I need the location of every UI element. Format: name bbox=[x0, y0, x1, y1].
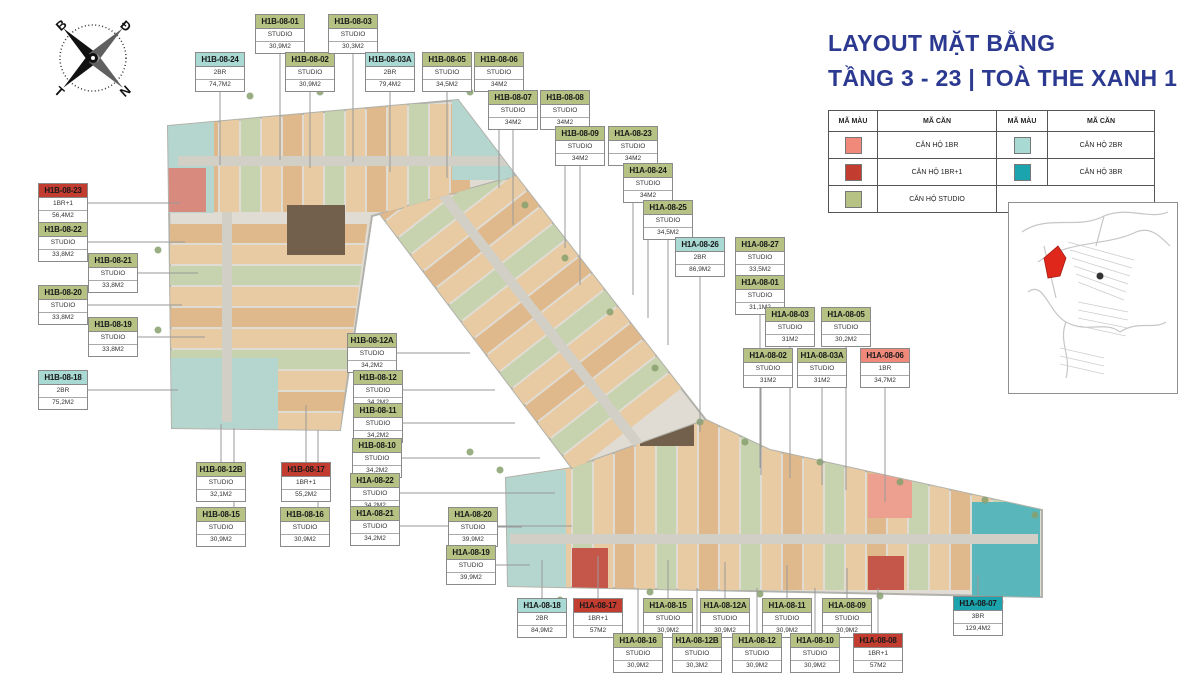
unit-type: 1BR+1 bbox=[574, 613, 622, 626]
unit-id: H1A-08-09 bbox=[823, 599, 871, 613]
unit-id: H1B-08-02 bbox=[286, 53, 334, 67]
unit-id: H1B-08-23 bbox=[39, 184, 87, 198]
unit-type: STUDIO bbox=[614, 648, 662, 661]
unit-id: H1B-08-12B bbox=[197, 463, 245, 477]
unit-area: 31M2 bbox=[744, 376, 792, 388]
unit-area: 39,9M2 bbox=[447, 573, 495, 585]
unit-label-H1A-08-26: H1A-08-262BR86,9M2 bbox=[675, 237, 725, 277]
unit-id: H1A-08-22 bbox=[351, 474, 399, 488]
compass-d: Đ bbox=[117, 17, 134, 34]
unit-id: H1A-08-26 bbox=[676, 238, 724, 252]
unit-type: STUDIO bbox=[423, 67, 471, 80]
compass-t: T bbox=[51, 83, 67, 100]
unit-label-H1B-08-07: H1B-08-07STUDIO34M2 bbox=[488, 90, 538, 130]
unit-id: H1A-08-12A bbox=[701, 599, 749, 613]
legend-table: MÃ MÀUMÃ CĂNMÃ MÀUMÃ CĂNCĂN HỘ 1BRCĂN HỘ… bbox=[828, 110, 1155, 213]
unit-area: 34M2 bbox=[489, 118, 537, 130]
legend-swatch-1BR+1 bbox=[845, 164, 862, 181]
unit-id: H1A-08-06 bbox=[861, 349, 909, 363]
legend-color-cell bbox=[829, 159, 877, 185]
unit-type: STUDIO bbox=[733, 648, 781, 661]
unit-type: STUDIO bbox=[624, 178, 672, 191]
unit-id: H1B-08-15 bbox=[197, 508, 245, 522]
unit-label-H1B-08-03: H1B-08-03STUDIO30,3M2 bbox=[328, 14, 378, 54]
unit-type: 2BR bbox=[518, 613, 566, 626]
unit-area: 30,9M2 bbox=[281, 535, 329, 547]
unit-type: STUDIO bbox=[449, 522, 497, 535]
unit-id: H1B-08-16 bbox=[281, 508, 329, 522]
unit-id: H1B-08-12A bbox=[348, 334, 396, 348]
unit-label-H1A-08-03: H1A-08-03STUDIO31M2 bbox=[765, 307, 815, 347]
unit-id: H1B-08-17 bbox=[282, 463, 330, 477]
unit-area: 32,1M2 bbox=[197, 490, 245, 502]
legend-color-cell bbox=[997, 159, 1047, 185]
unit-area: 30,9M2 bbox=[197, 535, 245, 547]
unit-label-H1B-08-21: H1B-08-21STUDIO33,8M2 bbox=[88, 253, 138, 293]
unit-area: 33,8M2 bbox=[89, 345, 137, 357]
unit-id: H1B-08-07 bbox=[489, 91, 537, 105]
legend-header-unit: MÃ CĂN bbox=[878, 111, 996, 131]
unit-label-H1B-08-24: H1B-08-242BR74,7M2 bbox=[195, 52, 245, 92]
unit-id: H1A-08-01 bbox=[736, 276, 784, 290]
unit-area: 79,4M2 bbox=[366, 80, 414, 92]
unit-type: STUDIO bbox=[763, 613, 811, 626]
unit-id: H1A-08-07 bbox=[954, 597, 1002, 611]
unit-id: H1B-08-20 bbox=[39, 286, 87, 300]
unit-area: 55,2M2 bbox=[282, 490, 330, 502]
unit-type: 2BR bbox=[366, 67, 414, 80]
unit-area: 57M2 bbox=[854, 661, 902, 673]
unit-type: STUDIO bbox=[354, 418, 402, 431]
unit-label-H1A-08-21: H1A-08-21STUDIO34,2M2 bbox=[350, 506, 400, 546]
unit-label-H1A-08-12: H1A-08-12STUDIO30,9M2 bbox=[732, 633, 782, 673]
title-line-1: LAYOUT MẶT BẰNG bbox=[828, 26, 1177, 61]
unit-id: H1A-08-05 bbox=[822, 308, 870, 322]
unit-type: STUDIO bbox=[197, 522, 245, 535]
unit-label-H1A-08-17: H1A-08-171BR+157M2 bbox=[573, 598, 623, 638]
unit-type: STUDIO bbox=[351, 521, 399, 534]
unit-type: STUDIO bbox=[791, 648, 839, 661]
unit-id: H1A-08-23 bbox=[609, 127, 657, 141]
unit-type: STUDIO bbox=[281, 522, 329, 535]
unit-label-H1A-08-19: H1A-08-19STUDIO39,9M2 bbox=[446, 545, 496, 585]
title-line-2: TẦNG 3 - 23 | TOÀ THE XANH 1 bbox=[828, 61, 1177, 96]
unit-type: 2BR bbox=[39, 385, 87, 398]
unit-label-H1B-08-16: H1B-08-16STUDIO30,9M2 bbox=[280, 507, 330, 547]
unit-label-H1A-08-18: H1A-08-182BR84,9M2 bbox=[517, 598, 567, 638]
unit-id: H1B-08-03 bbox=[329, 15, 377, 29]
unit-label-H1B-08-23: H1B-08-231BR+156,4M2 bbox=[38, 183, 88, 223]
unit-area: 56,4M2 bbox=[39, 211, 87, 223]
unit-type: 1BR+1 bbox=[282, 477, 330, 490]
page-title: LAYOUT MẶT BẰNG TẦNG 3 - 23 | TOÀ THE XA… bbox=[828, 26, 1177, 95]
unit-area: 34M2 bbox=[556, 154, 604, 166]
unit-type: STUDIO bbox=[823, 613, 871, 626]
compass-icon: B Đ T N bbox=[45, 8, 141, 104]
unit-label-H1A-08-16: H1A-08-16STUDIO30,9M2 bbox=[613, 633, 663, 673]
unit-id: H1B-08-19 bbox=[89, 318, 137, 332]
unit-label-H1B-08-12B: H1B-08-12BSTUDIO32,1M2 bbox=[196, 462, 246, 502]
legend-color-cell bbox=[997, 132, 1047, 158]
unit-id: H1A-08-11 bbox=[763, 599, 811, 613]
unit-type: STUDIO bbox=[644, 613, 692, 626]
unit-id: H1A-08-24 bbox=[624, 164, 672, 178]
unit-id: H1A-08-15 bbox=[644, 599, 692, 613]
unit-label-H1A-08-24: H1A-08-24STUDIO34M2 bbox=[623, 163, 673, 203]
unit-id: H1B-08-11 bbox=[354, 404, 402, 418]
unit-id: H1A-08-18 bbox=[518, 599, 566, 613]
unit-type: STUDIO bbox=[701, 613, 749, 626]
unit-label-H1B-08-06: H1B-08-06STUDIO34M2 bbox=[474, 52, 524, 92]
unit-type: 1BR+1 bbox=[39, 198, 87, 211]
unit-area: 33,8M2 bbox=[39, 313, 87, 325]
unit-id: H1B-08-21 bbox=[89, 254, 137, 268]
unit-id: H1B-08-09 bbox=[556, 127, 604, 141]
legend-swatch-STUDIO bbox=[845, 191, 862, 208]
unit-area: 75,2M2 bbox=[39, 398, 87, 410]
unit-type: STUDIO bbox=[475, 67, 523, 80]
unit-area: 33,8M2 bbox=[39, 250, 87, 262]
unit-id: H1B-08-03A bbox=[366, 53, 414, 67]
unit-label-H1B-08-10: H1B-08-10STUDIO34,2M2 bbox=[352, 438, 402, 478]
unit-id: H1A-08-17 bbox=[574, 599, 622, 613]
unit-id: H1A-08-12B bbox=[673, 634, 721, 648]
unit-type: STUDIO bbox=[39, 237, 87, 250]
unit-area: 129,4M2 bbox=[954, 624, 1002, 636]
unit-type: STUDIO bbox=[489, 105, 537, 118]
unit-id: H1A-08-03A bbox=[798, 349, 846, 363]
unit-label-H1B-08-12A: H1B-08-12ASTUDIO34,2M2 bbox=[347, 333, 397, 373]
unit-type: STUDIO bbox=[286, 67, 334, 80]
unit-label-H1A-08-12A: H1A-08-12ASTUDIO30,9M2 bbox=[700, 598, 750, 638]
unit-label-H1B-08-20: H1B-08-20STUDIO33,8M2 bbox=[38, 285, 88, 325]
unit-label-H1B-08-02: H1B-08-02STUDIO30,9M2 bbox=[285, 52, 335, 92]
unit-area: 30,3M2 bbox=[673, 661, 721, 673]
unit-id: H1B-08-12 bbox=[354, 371, 402, 385]
unit-id: H1B-08-24 bbox=[196, 53, 244, 67]
unit-id: H1B-08-05 bbox=[423, 53, 471, 67]
unit-id: H1B-08-08 bbox=[541, 91, 589, 105]
unit-id: H1A-08-08 bbox=[854, 634, 902, 648]
unit-area: 30,9M2 bbox=[733, 661, 781, 673]
unit-label-H1B-08-19: H1B-08-19STUDIO33,8M2 bbox=[88, 317, 138, 357]
unit-label-H1A-08-15: H1A-08-15STUDIO30,9M2 bbox=[643, 598, 693, 638]
unit-type: STUDIO bbox=[556, 141, 604, 154]
unit-label-H1B-08-15: H1B-08-15STUDIO30,9M2 bbox=[196, 507, 246, 547]
unit-label-H1A-08-09: H1A-08-09STUDIO30,9M2 bbox=[822, 598, 872, 638]
unit-area: 31M2 bbox=[766, 335, 814, 347]
legend-swatch-3BR bbox=[1014, 164, 1031, 181]
unit-id: H1A-08-10 bbox=[791, 634, 839, 648]
unit-label-H1A-08-05: H1A-08-05STUDIO30,2M2 bbox=[821, 307, 871, 347]
unit-area: 86,9M2 bbox=[676, 265, 724, 277]
unit-area: 34,5M2 bbox=[423, 80, 471, 92]
unit-label-H1B-08-11: H1B-08-11STUDIO34,2M2 bbox=[353, 403, 403, 443]
unit-type: STUDIO bbox=[736, 252, 784, 265]
unit-label-H1A-08-08: H1A-08-081BR+157M2 bbox=[853, 633, 903, 673]
floorplan-page: B Đ T N LAYOUT MẶT BẰNG TẦNG 3 - 23 | TO… bbox=[0, 0, 1200, 675]
unit-id: H1A-08-20 bbox=[449, 508, 497, 522]
unit-id: H1B-08-22 bbox=[39, 223, 87, 237]
legend-label: CĂN HỘ 1BR bbox=[878, 132, 996, 158]
unit-label-H1B-08-01: H1B-08-01STUDIO30,9M2 bbox=[255, 14, 305, 54]
unit-area: 30,2M2 bbox=[822, 335, 870, 347]
unit-area: 33,8M2 bbox=[89, 281, 137, 293]
unit-type: STUDIO bbox=[644, 215, 692, 228]
legend-label: CĂN HỘ 1BR+1 bbox=[878, 159, 996, 185]
unit-label-H1A-08-27: H1A-08-27STUDIO33,5M2 bbox=[735, 237, 785, 277]
unit-label-H1A-08-23: H1A-08-23STUDIO34M2 bbox=[608, 126, 658, 166]
legend-swatch-2BR bbox=[1014, 137, 1031, 154]
unit-label-H1B-08-03A: H1B-08-03A2BR79,4M2 bbox=[365, 52, 415, 92]
unit-type: STUDIO bbox=[89, 268, 137, 281]
unit-label-H1B-08-17: H1B-08-171BR+155,2M2 bbox=[281, 462, 331, 502]
legend-swatch-1BR bbox=[845, 137, 862, 154]
unit-label-H1A-08-25: H1A-08-25STUDIO34,5M2 bbox=[643, 200, 693, 240]
unit-type: STUDIO bbox=[197, 477, 245, 490]
unit-id: H1A-08-16 bbox=[614, 634, 662, 648]
unit-id: H1B-08-10 bbox=[353, 439, 401, 453]
unit-label-H1A-08-12B: H1A-08-12BSTUDIO30,3M2 bbox=[672, 633, 722, 673]
unit-type: STUDIO bbox=[822, 322, 870, 335]
unit-type: 3BR bbox=[954, 611, 1002, 624]
unit-type: STUDIO bbox=[354, 385, 402, 398]
unit-label-H1B-08-09: H1B-08-09STUDIO34M2 bbox=[555, 126, 605, 166]
legend-color-cell bbox=[829, 186, 877, 212]
unit-type: STUDIO bbox=[89, 332, 137, 345]
unit-type: STUDIO bbox=[353, 453, 401, 466]
unit-area: 31M2 bbox=[798, 376, 846, 388]
unit-label-H1A-08-10: H1A-08-10STUDIO30,9M2 bbox=[790, 633, 840, 673]
unit-id: H1B-08-18 bbox=[39, 371, 87, 385]
legend-header-color: MÃ MÀU bbox=[997, 111, 1047, 131]
legend-label: CĂN HỘ STUDIO bbox=[878, 186, 996, 212]
unit-label-H1A-08-11: H1A-08-11STUDIO30,9M2 bbox=[762, 598, 812, 638]
unit-type: STUDIO bbox=[736, 290, 784, 303]
unit-id: H1A-08-19 bbox=[447, 546, 495, 560]
unit-id: H1A-08-21 bbox=[351, 507, 399, 521]
unit-area: 30,9M2 bbox=[791, 661, 839, 673]
location-minimap bbox=[1008, 202, 1178, 394]
unit-type: STUDIO bbox=[351, 488, 399, 501]
unit-type: STUDIO bbox=[447, 560, 495, 573]
legend-header-color: MÃ MÀU bbox=[829, 111, 877, 131]
unit-type: 2BR bbox=[676, 252, 724, 265]
unit-id: H1B-08-01 bbox=[256, 15, 304, 29]
unit-label-H1A-08-07: H1A-08-073BR129,4M2 bbox=[953, 596, 1003, 636]
unit-id: H1A-08-25 bbox=[644, 201, 692, 215]
unit-type: STUDIO bbox=[609, 141, 657, 154]
unit-id: H1A-08-03 bbox=[766, 308, 814, 322]
unit-type: STUDIO bbox=[329, 29, 377, 42]
unit-label-H1B-08-22: H1B-08-22STUDIO33,8M2 bbox=[38, 222, 88, 262]
unit-type: 2BR bbox=[196, 67, 244, 80]
unit-label-H1A-08-06: H1A-08-061BR34,7M2 bbox=[860, 348, 910, 388]
unit-type: STUDIO bbox=[766, 322, 814, 335]
unit-type: 1BR bbox=[861, 363, 909, 376]
unit-label-H1A-08-03A: H1A-08-03ASTUDIO31M2 bbox=[797, 348, 847, 388]
unit-type: STUDIO bbox=[256, 29, 304, 42]
unit-type: STUDIO bbox=[673, 648, 721, 661]
unit-label-H1A-08-02: H1A-08-02STUDIO31M2 bbox=[743, 348, 793, 388]
unit-type: STUDIO bbox=[541, 105, 589, 118]
unit-type: 1BR+1 bbox=[854, 648, 902, 661]
unit-type: STUDIO bbox=[798, 363, 846, 376]
unit-area: 84,9M2 bbox=[518, 626, 566, 638]
unit-id: H1A-08-02 bbox=[744, 349, 792, 363]
legend-label: CĂN HỘ 2BR bbox=[1048, 132, 1154, 158]
unit-label-H1B-08-08: H1B-08-08STUDIO34M2 bbox=[540, 90, 590, 130]
unit-area: 34,7M2 bbox=[861, 376, 909, 388]
unit-label-H1B-08-05: H1B-08-05STUDIO34,5M2 bbox=[422, 52, 472, 92]
unit-type: STUDIO bbox=[39, 300, 87, 313]
legend-header-unit: MÃ CĂN bbox=[1048, 111, 1154, 131]
unit-area: 34,2M2 bbox=[351, 534, 399, 546]
unit-area: 30,9M2 bbox=[286, 80, 334, 92]
unit-id: H1A-08-27 bbox=[736, 238, 784, 252]
unit-type: STUDIO bbox=[348, 348, 396, 361]
unit-label-H1B-08-18: H1B-08-182BR75,2M2 bbox=[38, 370, 88, 410]
unit-area: 30,9M2 bbox=[614, 661, 662, 673]
legend-color-cell bbox=[829, 132, 877, 158]
unit-id: H1B-08-06 bbox=[475, 53, 523, 67]
unit-type: STUDIO bbox=[744, 363, 792, 376]
legend-label: CĂN HỘ 3BR bbox=[1048, 159, 1154, 185]
unit-area: 74,7M2 bbox=[196, 80, 244, 92]
unit-label-H1A-08-20: H1A-08-20STUDIO39,9M2 bbox=[448, 507, 498, 547]
unit-id: H1A-08-12 bbox=[733, 634, 781, 648]
